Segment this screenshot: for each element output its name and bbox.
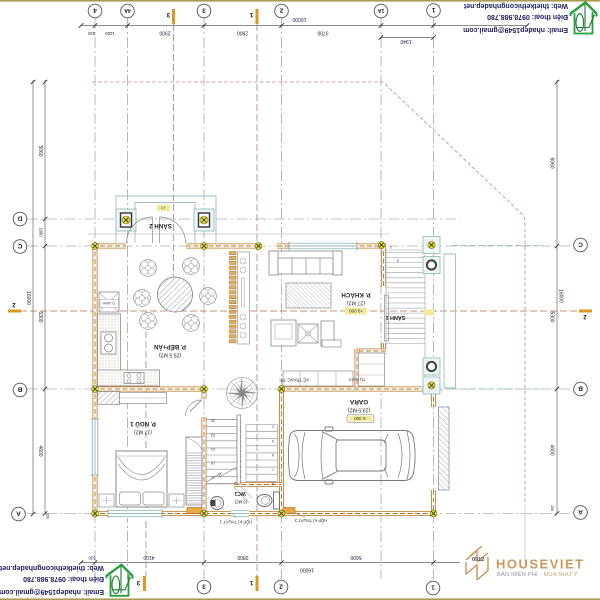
svg-text:25: 25 <box>211 419 215 423</box>
svg-text:TỦ GIÀY: TỦ GIÀY <box>348 377 365 382</box>
svg-text:7: 7 <box>272 467 274 471</box>
svg-text:C: C <box>578 241 583 248</box>
svg-text:(25.5 M2): (25.5 M2) <box>159 352 181 358</box>
svg-text:2: 2 <box>279 7 283 14</box>
svg-text:23: 23 <box>211 433 215 437</box>
svg-text:Điện thoại: 0978.988.780: Điện thoại: 0978.988.780 <box>487 13 568 20</box>
svg-text:4: 4 <box>93 7 97 14</box>
svg-text:21: 21 <box>211 447 215 451</box>
svg-text:5300: 5300 <box>37 311 43 322</box>
svg-text:3: 3 <box>202 583 206 590</box>
svg-text:130: 130 <box>46 513 50 519</box>
svg-text:4100: 4100 <box>143 554 154 560</box>
svg-text:SẢNH 1: SẢNH 1 <box>386 314 406 321</box>
svg-text:1: 1 <box>272 425 274 429</box>
svg-text:3: 3 <box>272 439 274 443</box>
svg-text:1940: 1940 <box>400 38 411 44</box>
svg-text:B: B <box>578 385 583 392</box>
svg-text:C: C <box>17 242 22 249</box>
svg-text:WC1: WC1 <box>234 490 245 496</box>
svg-text:2: 2 <box>279 583 283 590</box>
svg-text:-0.300: -0.300 <box>354 416 367 421</box>
svg-text:+3: +3 <box>160 205 165 210</box>
svg-text:1200: 1200 <box>105 31 115 36</box>
svg-text:4600: 4600 <box>37 445 43 456</box>
svg-text:1: 1 <box>431 584 435 591</box>
svg-text:(27 M2): (27 M2) <box>347 300 365 306</box>
svg-text:520: 520 <box>87 31 95 36</box>
svg-text:(3 M2): (3 M2) <box>234 500 247 505</box>
svg-text:(23.5 M2): (23.5 M2) <box>348 407 370 413</box>
svg-text:19: 19 <box>211 461 215 465</box>
svg-text:P. KHÁCH: P. KHÁCH <box>341 291 371 298</box>
svg-text:5600: 5600 <box>350 554 361 560</box>
svg-text:16000: 16000 <box>25 291 31 305</box>
svg-text:BẢN MIỀN PHÍ · MUA NHƯ Ý: BẢN MIỀN PHÍ · MUA NHƯ Ý <box>497 571 578 578</box>
svg-text:4600: 4600 <box>549 444 555 455</box>
svg-text:B: B <box>17 386 22 393</box>
svg-text:3: 3 <box>202 7 206 14</box>
svg-text:2800: 2800 <box>237 554 248 560</box>
svg-text:5060: 5060 <box>37 145 43 156</box>
svg-text:SẢNH 2: SẢNH 2 <box>149 222 172 229</box>
svg-text:+0.000: +0.000 <box>349 308 363 313</box>
svg-text:1A: 1A <box>377 7 384 13</box>
svg-text:Email: nhadep1549@gmail.com: Email: nhadep1549@gmail.com <box>463 26 568 33</box>
svg-text:Web: thietkethicongnhadep.net: Web: thietkethicongnhadep.net <box>463 2 568 9</box>
svg-text:A: A <box>578 508 583 515</box>
svg-text:HỘP KĨ THUẬT 2: HỘP KĨ THUẬT 2 <box>294 518 327 523</box>
svg-text:HỘP KĨ THUẬT 1: HỘP KĨ THUẬT 1 <box>219 520 252 525</box>
svg-text:HOUSEVIET: HOUSEVIET <box>496 557 585 572</box>
svg-text:0912: 0912 <box>472 557 484 563</box>
svg-text:16000: 16000 <box>300 567 314 573</box>
svg-text:3700: 3700 <box>317 30 328 36</box>
svg-text:2800: 2800 <box>237 30 248 36</box>
svg-text:1: 1 <box>390 245 392 249</box>
svg-text:KỆ TRANG TRÍ: KỆ TRANG TRÍ <box>279 378 309 383</box>
svg-text:2900: 2900 <box>159 30 170 36</box>
svg-text:GARA: GARA <box>349 398 368 405</box>
svg-text:P. NGỦ 1: P. NGỦ 1 <box>130 420 156 427</box>
svg-text:5: 5 <box>272 453 274 457</box>
svg-text:P. BẾP+ĂN: P. BẾP+ĂN <box>153 343 186 350</box>
svg-text:130: 130 <box>550 505 554 511</box>
svg-text:4A: 4A <box>124 7 131 13</box>
svg-text:520: 520 <box>88 556 96 561</box>
svg-text:D: D <box>17 215 22 222</box>
svg-text:6060: 6060 <box>549 157 555 168</box>
svg-text:1: 1 <box>431 6 435 13</box>
svg-text:16000: 16000 <box>292 16 306 22</box>
svg-text:T.LẠNH: T.LẠNH <box>102 301 115 305</box>
svg-text:(17 M2): (17 M2) <box>134 429 152 435</box>
svg-text:3: 3 <box>397 259 399 263</box>
svg-text:1000: 1000 <box>39 227 44 237</box>
svg-text:9: 9 <box>272 481 274 485</box>
svg-text:5300: 5300 <box>549 311 555 322</box>
svg-text:A: A <box>16 510 21 517</box>
svg-text:16000: 16000 <box>558 289 564 303</box>
